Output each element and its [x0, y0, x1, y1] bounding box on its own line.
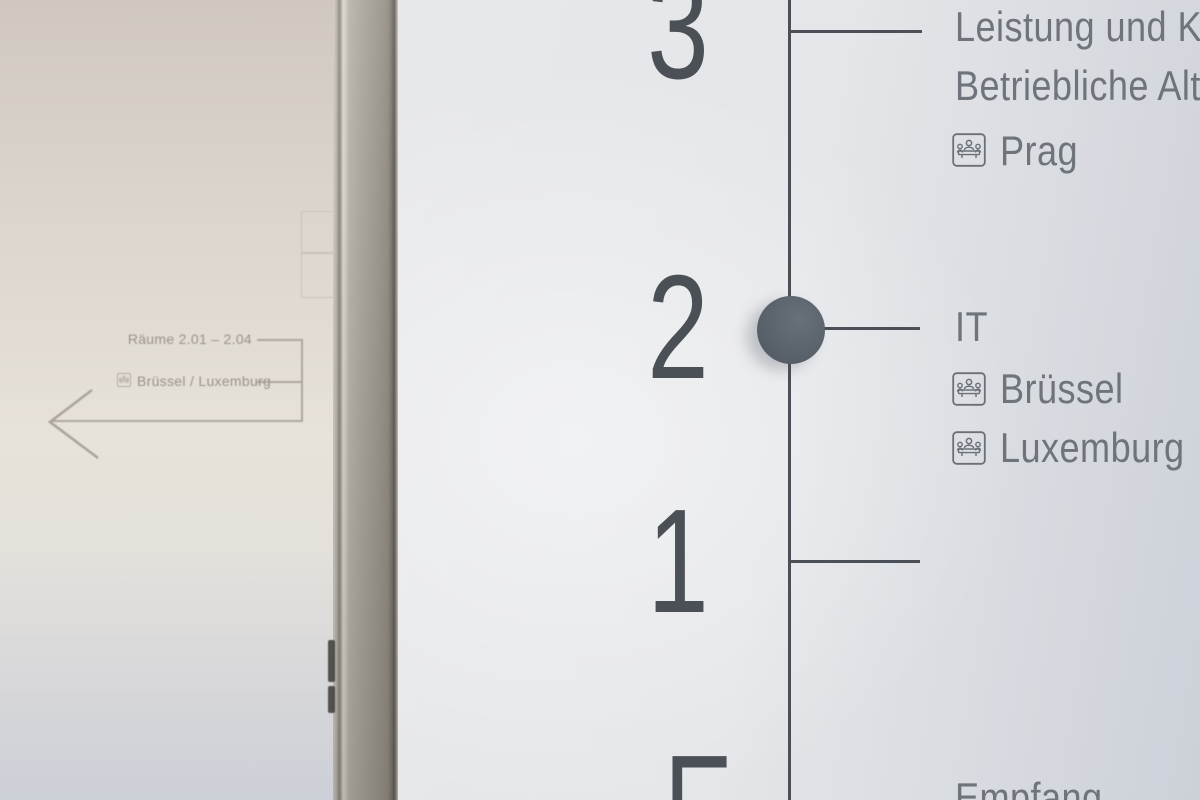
room-label-prag: Prag	[1000, 130, 1078, 172]
left-sign-branch-line	[257, 339, 303, 341]
floor-e-department: Empfang	[955, 777, 1103, 800]
current-floor-marker	[757, 296, 825, 364]
door-frame	[333, 0, 398, 800]
floor-3-tick	[789, 30, 922, 33]
floor-number-1: 1	[626, 488, 731, 636]
floor-1-tick	[789, 560, 920, 563]
door-strike-plate	[328, 686, 335, 713]
room-range-label: Räume 2.01 – 2.04	[100, 332, 252, 346]
room-label-luxemburg: Luxemburg	[1000, 427, 1185, 469]
meeting-room-icon	[952, 133, 986, 167]
meeting-room-icon	[952, 431, 986, 465]
wayfinding-photo: Räume 2.01 – 2.04 Brüssel / Luxemburg 3 …	[0, 0, 1200, 800]
destination-label: Brüssel / Luxemburg	[137, 374, 271, 388]
meeting-room-icon	[952, 372, 986, 406]
floor-2-department: IT	[955, 306, 988, 348]
floor-3-department: Leistung und Kont	[955, 6, 1200, 48]
floor-number-e: E	[664, 734, 733, 800]
floor-number-3: 3	[626, 0, 731, 102]
floor-3-department: Betriebliche Alters	[955, 65, 1200, 107]
left-sign-connector-line	[301, 339, 303, 422]
door-strike-plate	[328, 640, 335, 682]
arrow-left-icon	[38, 378, 110, 462]
room-label-bruessel: Brüssel	[1000, 368, 1123, 410]
meeting-room-icon	[117, 373, 131, 387]
floor-number-2: 2	[626, 254, 731, 402]
floor-directory-line	[788, 0, 791, 800]
